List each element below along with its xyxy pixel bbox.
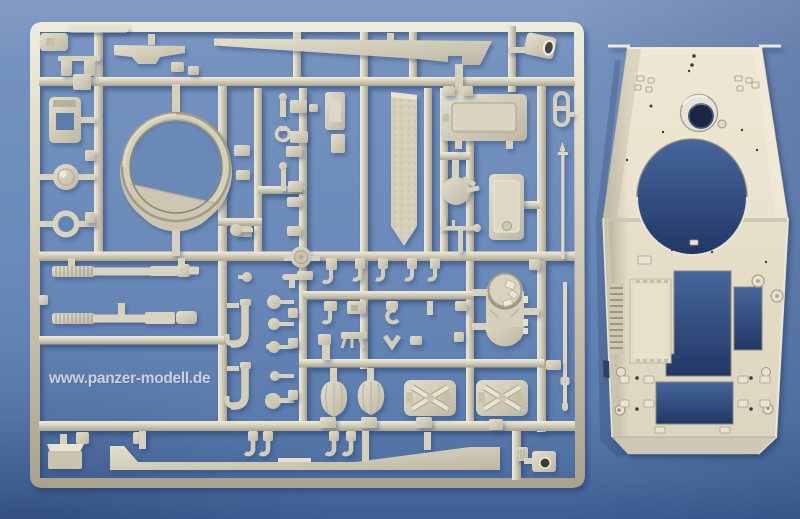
svg-text:www.panzer-modell.de: www.panzer-modell.de	[48, 370, 211, 387]
